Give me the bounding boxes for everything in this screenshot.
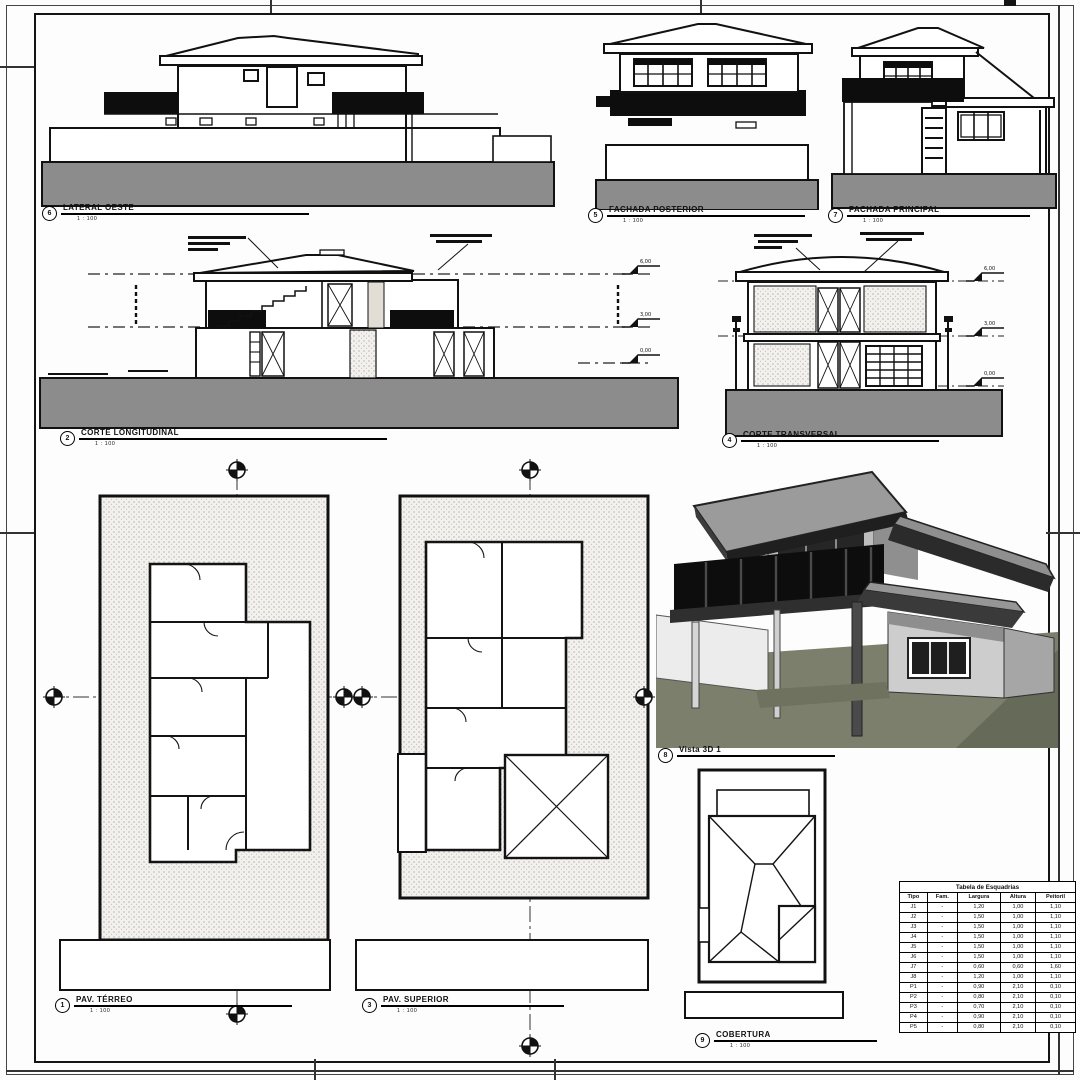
slatted-door <box>922 108 946 174</box>
schedule-cell: 1,50 <box>957 913 1000 923</box>
schedule-cell: - <box>927 993 957 1003</box>
schedule-cell: - <box>927 963 957 973</box>
schedule-cell: 1,10 <box>1036 923 1076 933</box>
grid-bubble <box>351 686 373 708</box>
railing-band <box>842 78 964 102</box>
schedule-cell: 0,80 <box>957 1023 1000 1033</box>
schedule-row: J4-1,501,001,10 <box>900 933 1076 943</box>
view-scale: 1 : 100 <box>90 1008 292 1014</box>
render-left-wall <box>656 615 768 692</box>
view-scale: 1 : 100 <box>623 218 805 224</box>
schedule-col-header: Altura <box>1000 893 1035 903</box>
view-number-bubble: 5 <box>588 208 603 223</box>
grid-bubble <box>519 459 541 481</box>
schedule-title: Tabela de Esquadrias <box>900 882 1076 893</box>
level-flag <box>622 266 660 274</box>
schedule-cell: 0,90 <box>957 983 1000 993</box>
schedule-cell: - <box>927 983 957 993</box>
schedule-cell: 1,00 <box>1000 913 1035 923</box>
pilaster-left <box>732 316 741 390</box>
view-title-posterior: 5 FACHADA POSTERIOR 1 : 100 <box>588 205 805 224</box>
gridded-window <box>708 59 766 86</box>
schedule-row: J3-1,501,001,10 <box>900 923 1076 933</box>
view-number-bubble: 9 <box>695 1033 710 1048</box>
schedule-row: J8-1,201,001,10 <box>900 973 1076 983</box>
drawing-sheet: 6,00 3,00 0,00 <box>0 0 1080 1080</box>
view-number-bubble: 3 <box>362 998 377 1013</box>
pavement-base <box>60 940 330 990</box>
view-title-text: FACHADA PRINCIPAL <box>847 205 1030 217</box>
ground-mass <box>40 378 678 428</box>
schedule-cell: - <box>927 973 957 983</box>
schedule-row: J7-0,600,601,60 <box>900 963 1076 973</box>
schedule-cell: 0,60 <box>1000 963 1035 973</box>
schedule-cell: J3 <box>900 923 928 933</box>
view-number-bubble: 7 <box>828 208 843 223</box>
view-scale: 1 : 100 <box>863 218 1030 224</box>
view-title-pav-superior: 3 PAV. SUPERIOR 1 : 100 <box>362 995 564 1014</box>
sheet-bottom-margin-line <box>6 1070 1074 1072</box>
pilaster-right <box>944 316 953 390</box>
wall-hatch <box>754 344 810 386</box>
plan-pav-superior-drawing <box>348 456 660 1062</box>
view-title-vista-3d: 8 Vista 3D 1 <box>658 745 835 763</box>
render-column <box>692 622 699 708</box>
view-scale: 1 : 100 <box>95 441 387 447</box>
fold-tick-bottom-2 <box>554 1059 556 1080</box>
schedule-cell: 0,10 <box>1036 1013 1076 1023</box>
schedule-cell: 1,10 <box>1036 973 1076 983</box>
view-title-corte-longitudinal: 2 CORTE LONGITUDINAL 1 : 100 <box>60 428 387 447</box>
schedule-cell: 1,50 <box>957 943 1000 953</box>
schedule-cell: 1,00 <box>1000 973 1035 983</box>
elevation-fachada-principal-drawing <box>826 18 1062 210</box>
schedule-cell: 1,10 <box>1036 933 1076 943</box>
schedule-cell: - <box>927 913 957 923</box>
schedule-row: J1-1,201,001,10 <box>900 903 1076 913</box>
terrace-roof <box>505 755 608 858</box>
schedule-table: Tabela de Esquadrias TipoFam.LarguraAltu… <box>899 881 1076 1033</box>
schedule-row: P4-0,902,100,10 <box>900 1013 1076 1023</box>
schedule-cell: 1,00 <box>1000 953 1035 963</box>
door-section <box>262 332 284 376</box>
schedule-cell: P1 <box>900 983 928 993</box>
view-title-corte-transversal: 4 CORTE TRANSVERSAL 1 : 100 <box>722 430 939 449</box>
schedule-col-header: Peitoril <box>1036 893 1076 903</box>
beam-band-left <box>208 310 266 328</box>
door <box>267 67 297 107</box>
lower-left-wall <box>844 102 932 174</box>
view-number-bubble: 1 <box>55 998 70 1013</box>
door-section <box>818 342 838 388</box>
elevation-lateral-oeste-drawing <box>38 14 560 210</box>
view-title-text: CORTE TRANSVERSAL <box>741 430 939 442</box>
railing-band <box>610 90 806 116</box>
roof-slope-edge <box>976 52 1034 98</box>
section-corte-transversal-drawing: 6,00 3,00 0,00 <box>712 228 1016 444</box>
railing-band-right <box>332 92 424 114</box>
plan-cobertura-drawing <box>683 760 855 1038</box>
ground-mass <box>42 162 554 206</box>
schedule-row: J5-1,501,001,10 <box>900 943 1076 953</box>
door-section <box>818 288 838 332</box>
wall-hatch <box>754 286 816 332</box>
svg-text:3,00: 3,00 <box>984 321 995 327</box>
elevation-fachada-posterior-drawing <box>588 18 824 210</box>
roof-fascia <box>736 272 948 281</box>
roof-curve <box>740 257 944 272</box>
fold-tick-left-1 <box>0 66 34 68</box>
schedule-row: P1-0,902,100,10 <box>900 983 1076 993</box>
fold-tick-top-3 <box>1004 0 1016 6</box>
view-title-text: PAV. SUPERIOR <box>381 995 564 1007</box>
window <box>308 73 324 85</box>
schedule-row: J2-1,501,001,10 <box>900 913 1076 923</box>
schedule-cell: 1,10 <box>1036 903 1076 913</box>
render-window <box>908 638 970 678</box>
pavement-base <box>356 940 648 990</box>
door-section <box>250 332 260 376</box>
schedule-cell: 1,00 <box>1000 933 1035 943</box>
door-section <box>840 288 860 332</box>
view-scale: 1 : 100 <box>730 1043 877 1049</box>
schedule-cell: - <box>927 953 957 963</box>
side-balcony <box>398 754 426 852</box>
view-scale: 1 : 100 <box>397 1008 564 1014</box>
schedule-cell: - <box>927 923 957 933</box>
view-scale: 1 : 100 <box>757 443 939 449</box>
schedule-cell: 0,90 <box>957 1013 1000 1023</box>
beam-band-right <box>390 310 454 328</box>
level-flag <box>622 319 660 327</box>
render-column <box>852 602 862 736</box>
door-section <box>464 332 484 376</box>
schedule-cell: 2,10 <box>1000 993 1035 1003</box>
schedule-cell: 0,70 <box>957 1003 1000 1013</box>
vista-3d-render <box>656 460 1058 748</box>
hip-roof <box>858 28 984 48</box>
schedule-body: J1-1,201,001,10J2-1,501,001,10J3-1,501,0… <box>900 903 1076 1033</box>
schedule-cell: 2,10 <box>1000 983 1035 993</box>
schedule-cell: 1,00 <box>1000 903 1035 913</box>
schedule-cell: J6 <box>900 953 928 963</box>
schedule-cell: - <box>927 1003 957 1013</box>
level-flag <box>966 378 1004 386</box>
schedule-cell: 1,20 <box>957 903 1000 913</box>
view-scale: 1 : 100 <box>77 216 309 222</box>
fold-tick-left-2 <box>0 532 34 534</box>
schedule-cell: 2,10 <box>1000 1013 1035 1023</box>
fold-tick-top-2 <box>700 0 702 13</box>
roof-fascia <box>160 56 422 65</box>
level-flag <box>966 273 1004 281</box>
schedule-cell: 0,10 <box>1036 1023 1076 1033</box>
view-title-text: LATERAL OESTE <box>61 203 309 215</box>
schedule-row: J6-1,501,001,10 <box>900 953 1076 963</box>
annotation-note <box>430 234 492 270</box>
schedule-cell: J2 <box>900 913 928 923</box>
schedule-col-header: Tipo <box>900 893 928 903</box>
svg-text:6,00: 6,00 <box>984 266 995 272</box>
view-title-text: CORTE LONGITUDINAL <box>79 428 387 440</box>
view-title-pav-terreo: 1 PAV. TÉRREO 1 : 100 <box>55 995 292 1014</box>
schedule-cell: 2,10 <box>1000 1023 1035 1033</box>
roof-fascia <box>194 273 412 281</box>
schedule-cell: J1 <box>900 903 928 913</box>
schedule-cell: 1,00 <box>1000 923 1035 933</box>
schedule-cell: J4 <box>900 933 928 943</box>
hip-roof <box>166 36 418 56</box>
schedule-cell: 0,10 <box>1036 993 1076 1003</box>
window <box>244 70 258 81</box>
schedule-cell: P3 <box>900 1003 928 1013</box>
railing-band-left <box>104 92 178 114</box>
view-title-text: Vista 3D 1 <box>677 745 835 757</box>
svg-text:6,00: 6,00 <box>640 259 651 265</box>
schedule-cell: J7 <box>900 963 928 973</box>
view-title-text: PAV. TÉRREO <box>74 995 292 1007</box>
schedule-cell: 1,50 <box>957 923 1000 933</box>
pavement-base <box>685 992 843 1018</box>
base-wall <box>50 128 500 162</box>
schedule-cell: 1,50 <box>957 953 1000 963</box>
schedule-head-row: TipoFam.LarguraAlturaPeitoril <box>900 893 1076 903</box>
schedule-row: P2-0,802,100,10 <box>900 993 1076 1003</box>
schedule-cell: - <box>927 903 957 913</box>
grid-bubble <box>226 459 248 481</box>
three-pane-window <box>958 112 1004 140</box>
floor-slab <box>744 334 940 341</box>
roof-fascia <box>604 44 812 53</box>
schedule-cell: 0,80 <box>957 993 1000 1003</box>
schedule-col-header: Largura <box>957 893 1000 903</box>
door-section <box>328 284 352 326</box>
view-number-bubble: 4 <box>722 433 737 448</box>
hip-roof <box>610 24 806 44</box>
schedule-cell: - <box>927 1023 957 1033</box>
schedule-cell: J8 <box>900 973 928 983</box>
view-title-lateral: 6 LATERAL OESTE 1 : 100 <box>42 203 309 222</box>
grid-bubble <box>519 1035 541 1057</box>
schedule-cell: 1,10 <box>1036 953 1076 963</box>
view-title-cobertura: 9 COBERTURA 1 : 100 <box>695 1030 877 1049</box>
schedule-cell: 1,60 <box>1036 963 1076 973</box>
schedule-cell: 1,10 <box>1036 943 1076 953</box>
view-title-principal: 7 FACHADA PRINCIPAL 1 : 100 <box>828 205 1030 224</box>
svg-text:3,00: 3,00 <box>640 312 651 318</box>
view-number-bubble: 8 <box>658 748 673 763</box>
view-title-text: FACHADA POSTERIOR <box>607 205 805 217</box>
schedule-cell: J5 <box>900 943 928 953</box>
ground-mass <box>832 174 1056 208</box>
hip-roof <box>200 255 414 273</box>
schedule-cell: 1,20 <box>957 973 1000 983</box>
fold-tick-top-1 <box>270 0 272 13</box>
wall-hatch <box>350 330 376 378</box>
roof-hips <box>709 816 815 962</box>
fold-tick-bottom-1 <box>314 1059 316 1080</box>
door-section <box>434 332 454 376</box>
schedule-cell: - <box>927 943 957 953</box>
base-wall <box>606 145 808 180</box>
schedule-cell: - <box>927 933 957 943</box>
louver-grid <box>866 346 922 386</box>
view-number-bubble: 2 <box>60 431 75 446</box>
schedule-cell: P4 <box>900 1013 928 1023</box>
schedule-cell: 0,60 <box>957 963 1000 973</box>
schedule-cell: 0,10 <box>1036 1003 1076 1013</box>
plan-pav-terreo-drawing <box>38 456 360 1036</box>
schedule-cell: 0,10 <box>1036 983 1076 993</box>
schedule-col-header: Fam. <box>927 893 957 903</box>
svg-text:0,00: 0,00 <box>640 348 651 354</box>
schedule-cell: 1,10 <box>1036 913 1076 923</box>
door-section <box>840 342 860 388</box>
schedule-cell: 1,00 <box>1000 943 1035 953</box>
level-flag <box>966 328 1004 336</box>
schedule-cell: P2 <box>900 993 928 1003</box>
wall-hatch <box>864 286 926 332</box>
schedule-cell: - <box>927 1013 957 1023</box>
schedule-cell: 2,10 <box>1000 1003 1035 1013</box>
section-corte-longitudinal-drawing: 6,00 3,00 0,00 <box>38 230 690 432</box>
view-title-text: COBERTURA <box>714 1030 877 1042</box>
schedule-row: P3-0,702,100,10 <box>900 1003 1076 1013</box>
grid-bubble <box>43 686 65 708</box>
schedule-cell: 1,50 <box>957 933 1000 943</box>
schedule-cell: P5 <box>900 1023 928 1033</box>
schedule-row: P5-0,802,100,10 <box>900 1023 1076 1033</box>
svg-text:0,00: 0,00 <box>984 371 995 377</box>
level-flag <box>622 355 660 363</box>
roof-fascia <box>852 48 978 56</box>
view-number-bubble: 6 <box>42 206 57 221</box>
gridded-window <box>634 59 692 86</box>
